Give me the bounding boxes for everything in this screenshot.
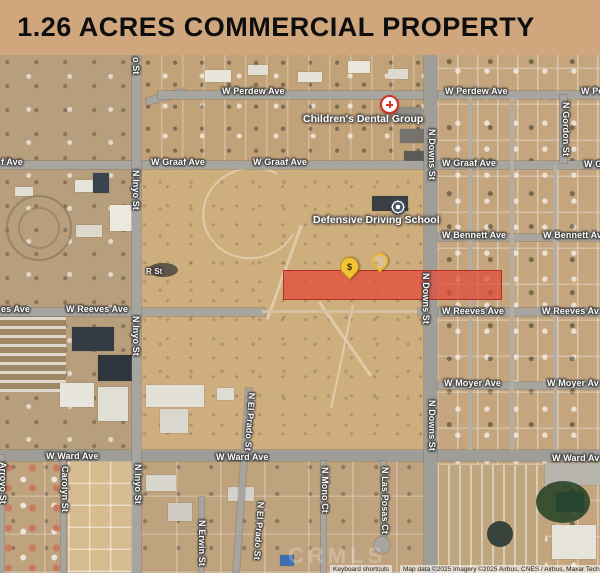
- highlighted-parcel[interactable]: [283, 270, 502, 300]
- tree-cluster: [536, 481, 590, 523]
- building: [298, 72, 322, 82]
- building: [146, 475, 176, 491]
- zone-red-roof-homes: [0, 460, 60, 573]
- building: [98, 355, 134, 381]
- zone-vacant-lots: [68, 460, 132, 572]
- map-attribution: Keyboard shortcuts Map data ©2025 Imager…: [330, 565, 600, 573]
- building: [248, 65, 268, 75]
- road-carolyn-st: [61, 455, 66, 573]
- building: [15, 187, 33, 196]
- road-n-inyo-st: [132, 55, 141, 573]
- cul-de-sac-circle: [487, 521, 513, 547]
- building: [348, 61, 370, 73]
- building: [552, 525, 596, 559]
- road-w-ward-ave: [0, 450, 600, 461]
- building: [93, 173, 109, 193]
- road-w-reeves-ave-dirt: [262, 310, 420, 313]
- dental-poi-label: Children's Dental Group: [303, 114, 423, 125]
- building: [280, 555, 294, 566]
- building: [205, 70, 231, 82]
- satellite-map[interactable]: W Perdew Ave W Perdew Ave W Pe f Ave W G…: [0, 55, 600, 573]
- road-n-erwin-st: [199, 497, 204, 573]
- road-w-perdew-ave: [158, 91, 600, 99]
- zone-mobile-home-rows: [0, 316, 66, 392]
- tree-cluster: [148, 263, 178, 277]
- road-n-downs-st: [424, 55, 437, 573]
- road-n-mono-ct: [321, 461, 326, 573]
- road-n-gordon-st: [560, 95, 567, 163]
- building: [160, 409, 188, 433]
- price-pin-glyph: $: [341, 258, 358, 275]
- zone-trailer-park: [437, 465, 545, 571]
- road-cul-de-sac: [374, 537, 390, 553]
- dental-poi-icon[interactable]: [380, 95, 399, 114]
- road-n-las-posas-ct: [381, 461, 386, 541]
- building: [98, 387, 128, 421]
- road-arroyo-st: [0, 455, 4, 573]
- building: [60, 383, 94, 407]
- building: [110, 205, 132, 231]
- driving-school-poi-label: Defensive Driving School: [313, 215, 440, 226]
- building: [72, 327, 114, 351]
- building: [388, 69, 408, 79]
- attribution-text: Map data ©2025 Imagery ©2025 Airbus, CNE…: [400, 565, 600, 573]
- building: [146, 385, 204, 407]
- road-residential: [553, 165, 557, 450]
- building: [217, 388, 234, 400]
- banner: 1.26 ACRES COMMERCIAL PROPERTY: [0, 0, 600, 55]
- road-w-reeves-ave-east: [418, 308, 600, 316]
- dirt-track-circle-inner: [18, 207, 60, 249]
- building: [76, 225, 102, 237]
- listing-title: 1.26 ACRES COMMERCIAL PROPERTY: [17, 12, 535, 43]
- keyboard-shortcuts-link[interactable]: Keyboard shortcuts: [330, 565, 392, 573]
- building: [168, 503, 192, 521]
- driving-school-poi-icon[interactable]: [390, 199, 406, 215]
- road-residential: [510, 97, 514, 450]
- building: [400, 129, 424, 143]
